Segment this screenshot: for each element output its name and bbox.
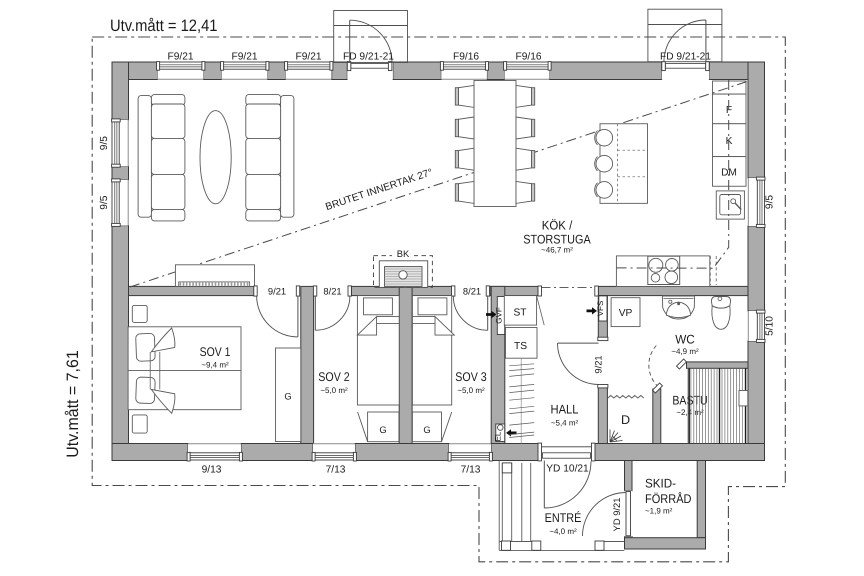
- svg-text:ST: ST: [513, 307, 526, 318]
- svg-text:F9/21: F9/21: [231, 51, 257, 62]
- svg-text:G: G: [284, 391, 291, 402]
- svg-text:8/21: 8/21: [323, 285, 341, 296]
- svg-text:~9,4 m²: ~9,4 m²: [201, 361, 229, 370]
- svg-text:5/10: 5/10: [765, 316, 776, 336]
- svg-text:SKID-: SKID-: [645, 477, 676, 491]
- svg-text:D: D: [621, 413, 630, 427]
- svg-text:F9/21: F9/21: [295, 51, 321, 62]
- svg-text:FÖRRÅD: FÖRRÅD: [645, 492, 692, 506]
- svg-text:GVF: GVF: [495, 307, 504, 324]
- svg-text:HALL: HALL: [551, 403, 579, 417]
- svg-text:9/5: 9/5: [765, 195, 776, 209]
- svg-text:~5,0 m²: ~5,0 m²: [320, 386, 348, 395]
- svg-text:FD 9/21-21: FD 9/21-21: [660, 51, 711, 62]
- svg-text:KÖK /: KÖK /: [542, 219, 573, 233]
- svg-text:SOV 3: SOV 3: [455, 370, 486, 384]
- svg-text:7/13: 7/13: [326, 464, 346, 475]
- svg-text:EL: EL: [494, 431, 503, 441]
- svg-text:STORSTUGA: STORSTUGA: [523, 233, 591, 247]
- svg-text:9/21: 9/21: [593, 355, 604, 373]
- svg-text:9/5: 9/5: [99, 195, 110, 209]
- svg-text:F9/16: F9/16: [453, 51, 479, 62]
- svg-text:9/5: 9/5: [99, 136, 110, 150]
- svg-text:F9/16: F9/16: [515, 51, 541, 62]
- svg-text:9/13: 9/13: [202, 464, 222, 475]
- svg-text:BK: BK: [397, 248, 410, 259]
- svg-text:~1,9 m²: ~1,9 m²: [645, 507, 673, 516]
- svg-text:7/13: 7/13: [461, 464, 481, 475]
- svg-text:ENTRÉ: ENTRÉ: [545, 511, 582, 525]
- svg-text:~5,4 m²: ~5,4 m²: [551, 419, 579, 428]
- svg-text:FD 9/21-21: FD 9/21-21: [343, 51, 394, 62]
- svg-text:F9/21: F9/21: [167, 51, 193, 62]
- svg-text:~4,0 m²: ~4,0 m²: [549, 527, 577, 536]
- svg-text:TS: TS: [514, 341, 527, 352]
- svg-text:G: G: [423, 424, 430, 435]
- svg-text:~46,7 m²: ~46,7 m²: [541, 246, 573, 255]
- svg-text:~4,9 m²: ~4,9 m²: [671, 347, 699, 356]
- svg-text:SOV 1: SOV 1: [200, 345, 231, 359]
- svg-text:Utv.mått = 7,61: Utv.mått = 7,61: [64, 350, 82, 458]
- svg-text:WC: WC: [675, 333, 695, 347]
- svg-text:YD 9/21: YD 9/21: [611, 498, 622, 532]
- svg-text:YD 10/21: YD 10/21: [546, 464, 589, 475]
- svg-text:9/21: 9/21: [268, 285, 286, 296]
- svg-text:VFS: VFS: [596, 301, 605, 317]
- svg-text:~5,0 m²: ~5,0 m²: [457, 386, 485, 395]
- svg-text:G: G: [379, 424, 386, 435]
- svg-text:SOV 2: SOV 2: [318, 370, 349, 384]
- svg-text:Utv.mått = 12,41: Utv.mått = 12,41: [110, 17, 218, 35]
- svg-text:VP: VP: [619, 308, 633, 319]
- svg-text:8/21: 8/21: [463, 285, 481, 296]
